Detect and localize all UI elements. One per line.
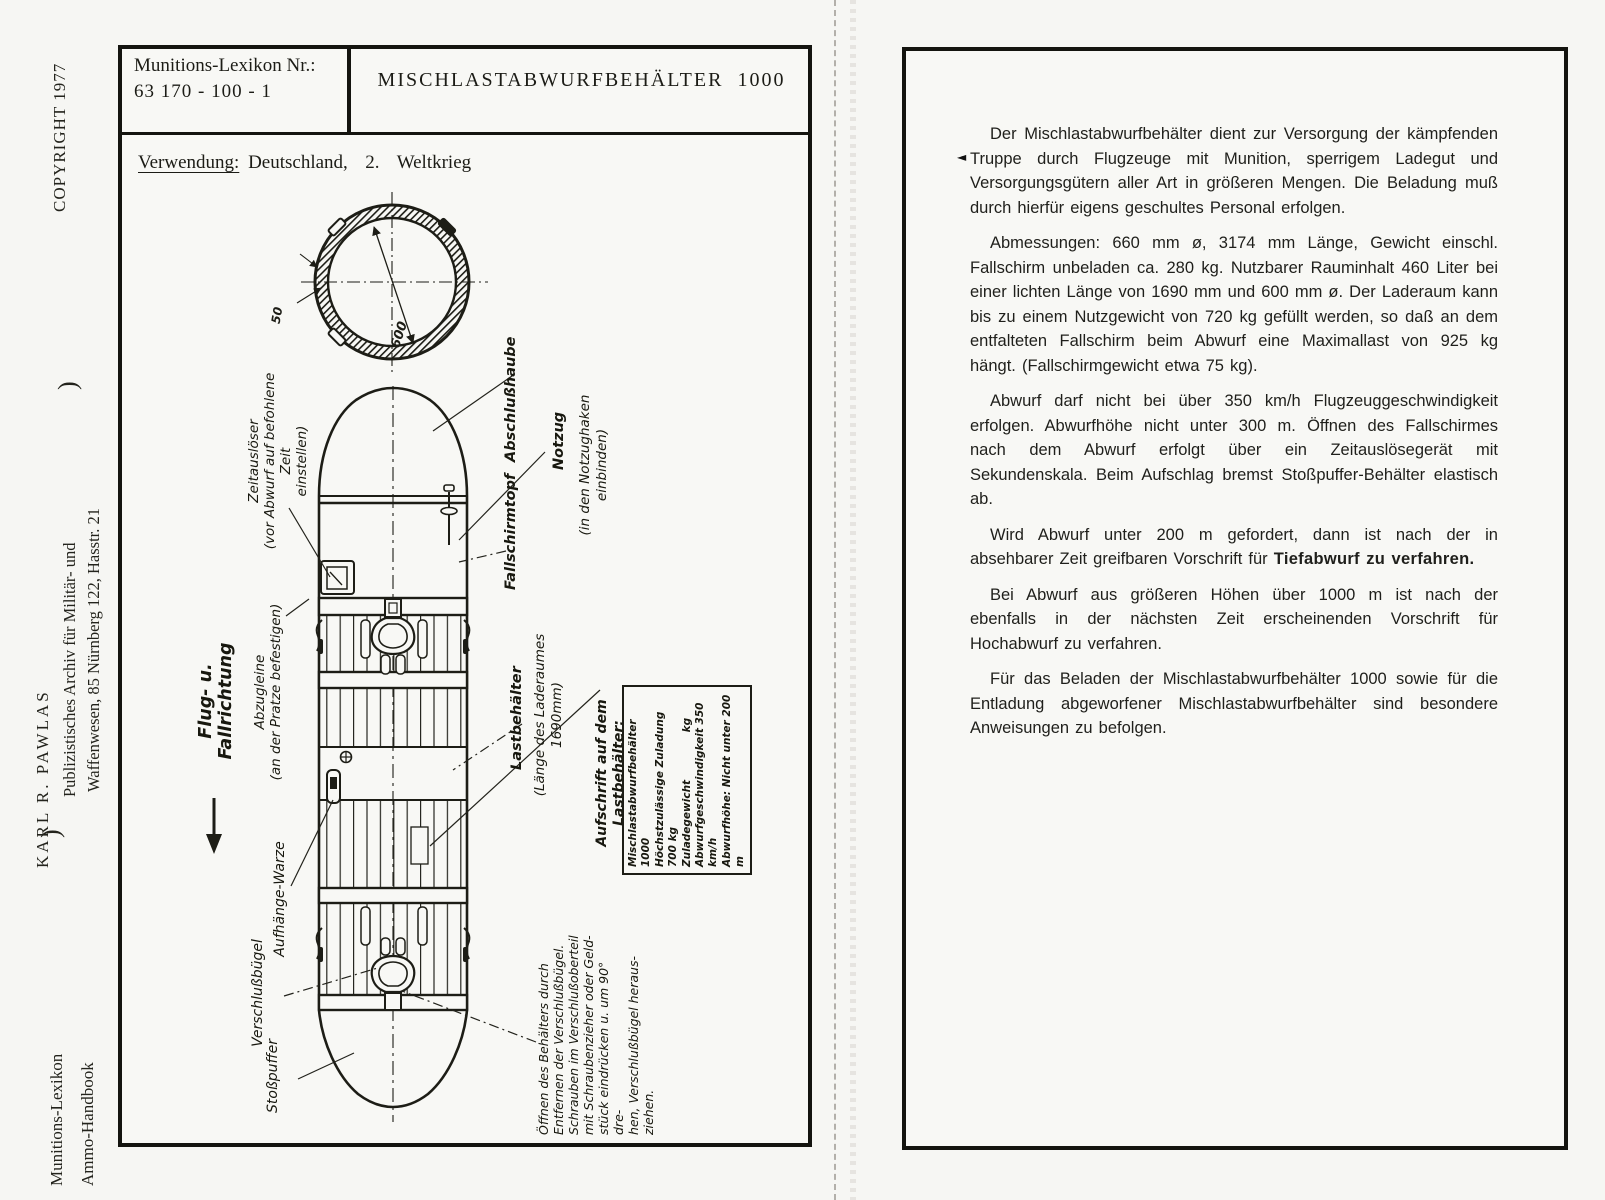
series-title-en: Ammo-Handbook (78, 961, 98, 1186)
flight-direction-arrow (206, 798, 222, 854)
label-abzugleine: Abzugleine (an der Pratze befestigen) (252, 598, 284, 786)
gutter-shadow (850, 0, 856, 1200)
paragraph-intro: Der Mischlastabwurfbehälter dient zur Ve… (970, 122, 1498, 220)
series-title-de: Munitions-Lexikon (47, 940, 67, 1186)
scanned-spread: COPYRIGHT 1977 ) KARL R. PAWLAS Publizis… (0, 0, 1605, 1200)
copyright-imprint: COPYRIGHT 1977 (50, 44, 70, 212)
label-abschlusshaube: Abschlußhaube (503, 338, 520, 462)
label-fallschirmtopf: Fallschirmtopf (503, 486, 520, 590)
label-opening-instructions: Öffnen des Behälters durch Entfernen der… (536, 935, 656, 1135)
margin-mark: ◄ (957, 150, 966, 164)
paragraph-low-drop: Wird Abwurf unter 200 m gefordert, dann … (970, 523, 1498, 572)
label-aufhaenge-warze: Aufhänge-Warze (272, 840, 289, 958)
paragraph-dimensions: Abmessungen: 660 mm ø, 3174 mm Länge, Ge… (970, 231, 1498, 378)
label-lastbehaelter-note: (Länge des Laderaumes 1690mm) (532, 610, 566, 820)
label-zeitausloeser: Zeitauslöser (vor Abwurf auf befohlene Z… (246, 366, 310, 556)
container-outline (317, 386, 470, 1122)
paragraph-drop-conditions: Abwurf darf nicht bei über 350 km/h Flug… (970, 389, 1498, 512)
label-stosspuffer: Stoßpuffer (265, 1034, 282, 1118)
label-lastbehaelter: Lastbehälter (509, 676, 526, 770)
bracket-bottom: ) (36, 802, 66, 838)
label-verschlussbuegel: Verschlußbügel (250, 938, 267, 1048)
low-drop-bold: Tiefabwurf zu verfahren. (1274, 550, 1475, 568)
description-text: Der Mischlastabwurfbehälter dient zur Ve… (970, 122, 1498, 752)
label-notzug: Notzug (551, 412, 568, 470)
label-notzug-note: (in den Notzughaken einbinden) (577, 357, 611, 573)
page-fold-line (834, 0, 836, 1200)
paragraph-loading: Für das Beladen der Mischlastabwurfbehäl… (970, 667, 1498, 741)
container-diagram: 600 50 (118, 45, 812, 1147)
inscription-plate-text: Mischlastabwurfbehälter 1000 Höchstzuläs… (622, 685, 752, 875)
publisher-address: Waffenwesen, 85 Nürnberg 122, Hasstr. 21 (84, 424, 104, 792)
dim-wall-text: 50 (269, 306, 286, 325)
paragraph-high-drop: Bei Abwurf aus größeren Höhen über 1000 … (970, 583, 1498, 657)
publisher-archive: Publizistisches Archiv für Militär- und (60, 377, 80, 797)
label-flight-direction: Flug- u. Fallrichtung (196, 610, 236, 792)
